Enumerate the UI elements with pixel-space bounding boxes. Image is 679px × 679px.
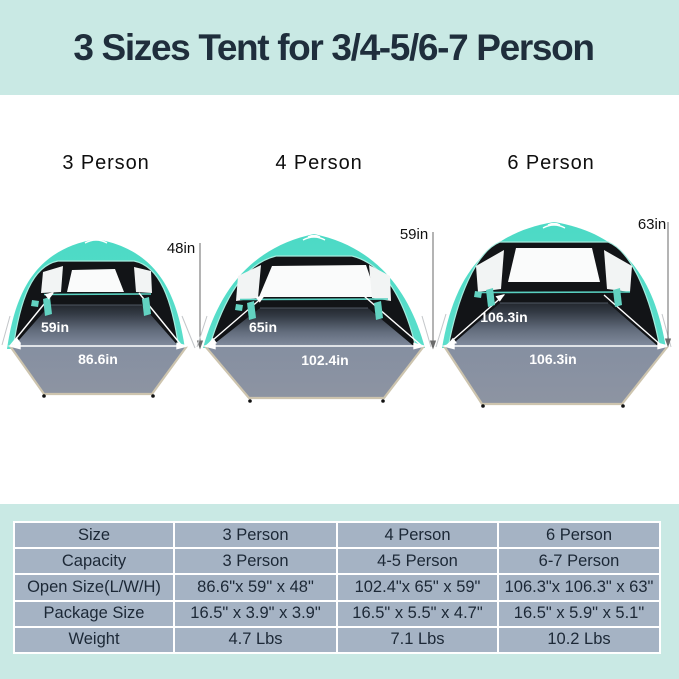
svg-text:59in: 59in <box>41 319 69 335</box>
svg-text:106.3in: 106.3in <box>480 309 527 325</box>
svg-text:59in: 59in <box>400 226 428 243</box>
svg-text:106.3in: 106.3in <box>529 351 576 367</box>
svg-text:48in: 48in <box>167 240 195 257</box>
svg-text:65in: 65in <box>249 319 277 335</box>
svg-text:63in: 63in <box>638 216 666 233</box>
svg-text:86.6in: 86.6in <box>78 351 118 367</box>
svg-text:102.4in: 102.4in <box>301 352 348 368</box>
